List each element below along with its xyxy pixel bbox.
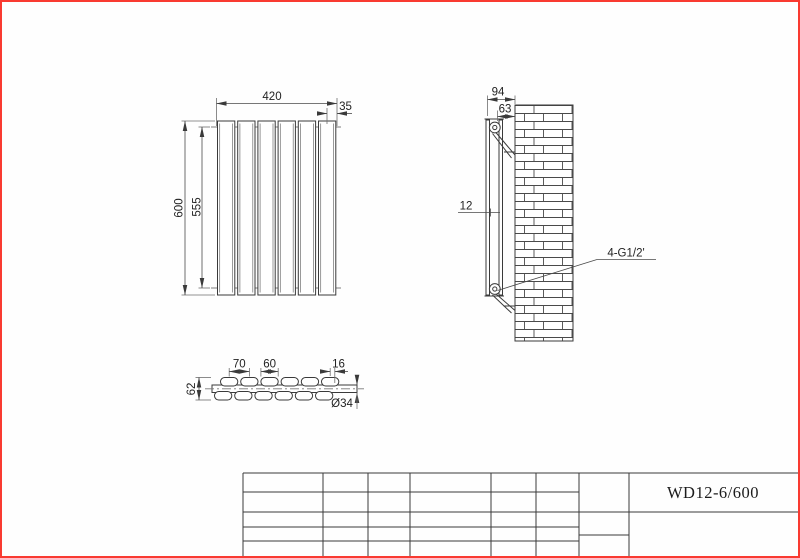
dim-label-width: 420 <box>262 91 281 103</box>
dim-label-end-offset: 16 <box>332 359 345 371</box>
front-view: 420 35 600 555 <box>174 91 353 295</box>
dim-label-bracket-depth: 63 <box>499 104 512 116</box>
dim-label-depth: 62 <box>186 383 198 396</box>
dimension-bracket-63: 63 <box>498 104 516 122</box>
dim-label-end-offset: 35 <box>339 101 352 113</box>
title-block: WD12-6/600 <box>243 473 798 557</box>
dim-label-inner-height: 555 <box>192 197 204 216</box>
dim-label-panel-pitch: 70 <box>233 359 246 371</box>
dimension-gap-12: 12 <box>458 201 500 217</box>
brick-wall <box>515 105 573 341</box>
dim-label-tube-diameter: Ø34 <box>331 398 353 410</box>
wall-bracket-top <box>493 132 516 158</box>
fitting-top <box>489 122 500 133</box>
fitting-bottom <box>489 284 500 295</box>
dim-label-total-depth: 94 <box>492 87 505 99</box>
radiator-side-profile <box>485 119 516 313</box>
cad-sheet: 420 35 600 555 <box>0 0 800 558</box>
callout-label-thread: 4-G1/2' <box>607 248 644 260</box>
dimension-panel-60: 60 <box>261 359 278 377</box>
dimension-pitch-70: 70 <box>229 359 249 377</box>
radiator-panels <box>218 121 336 295</box>
side-view: 94 63 12 4-G1/2' <box>458 87 656 342</box>
dim-label-panel-length: 60 <box>263 359 276 371</box>
dim-label-height: 600 <box>174 198 186 217</box>
model-number: WD12-6/600 <box>667 483 759 502</box>
dimension-inner-height-555: 555 <box>192 127 211 288</box>
cad-drawing-canvas: 420 35 600 555 <box>0 0 800 558</box>
top-view: 70 60 16 62 Ø34 <box>186 359 364 411</box>
dim-label-panel-gap: 12 <box>460 201 473 213</box>
